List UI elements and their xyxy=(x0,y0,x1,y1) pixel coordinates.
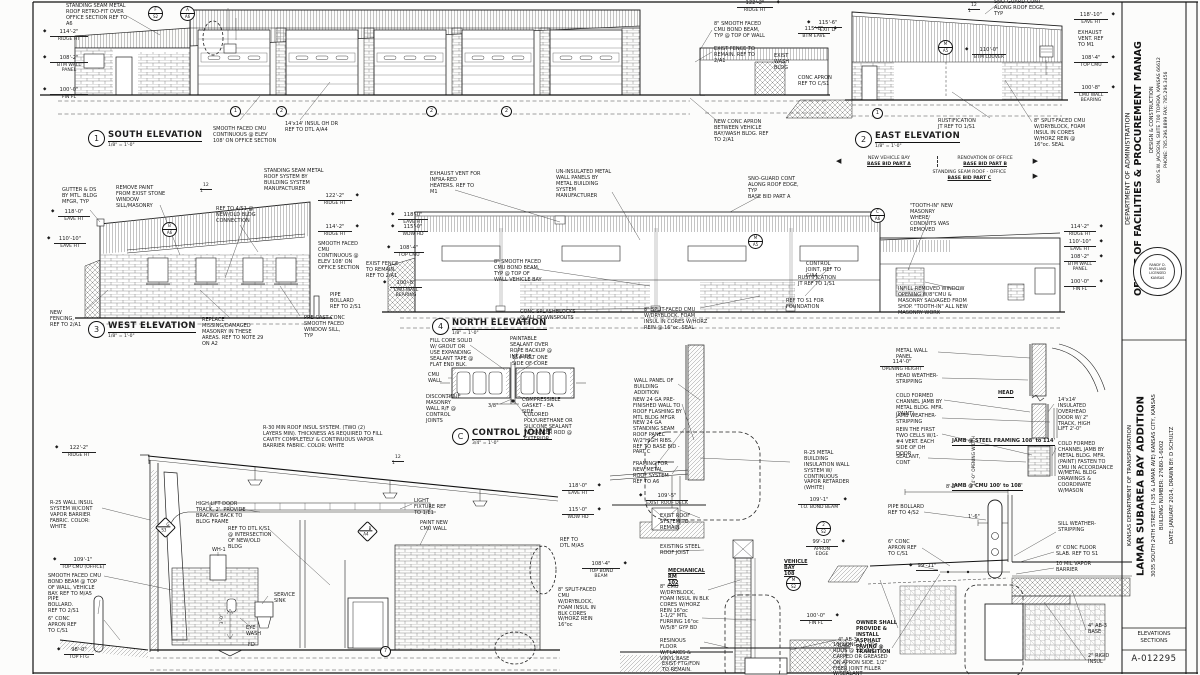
elev-mark: 108'-2"BTM WALL PANEL xyxy=(50,56,88,74)
elev-mark: 114'-0"OPENING HEIGHT xyxy=(880,360,924,372)
elev-mark: 115'-0"WDW HD xyxy=(562,508,594,520)
grid-bubble: 2 xyxy=(276,106,287,117)
west-elevation-drawing xyxy=(75,202,332,324)
annotation: LIGHT FIXTURE REF TO 1/E1 xyxy=(414,499,448,517)
building-number: BUILDING NUMBER: 27680-1-6002 xyxy=(1158,348,1166,623)
elev-mark: 122'-2"RIDGE HT xyxy=(62,446,96,458)
dim-3-0: 3'-0" xyxy=(220,614,225,624)
annotation: NEW CONC APRON BETWEEN VEHICLE BAY/WASH … xyxy=(714,120,772,144)
annotation: PAINT NEW CMU WALL xyxy=(420,521,450,533)
annotation: 6" CONC APRON REF TO C/S1 xyxy=(888,540,924,558)
elev-mark: 99'-11" xyxy=(916,564,938,571)
elev-mark: 100'-8"CMU WALL BEARING xyxy=(390,281,422,299)
building-section-drawing xyxy=(60,455,560,670)
detail-ref-bubble: FS2 xyxy=(148,6,163,21)
annotation: STANDING SEAM METAL ROOF SYSTEM BY BUILD… xyxy=(264,169,326,193)
annotation: SMOOTH FACED CMU CONTINUOUS @ ELEV 108' … xyxy=(318,242,364,271)
annotation: REF TO 4/S1 @ NEW/OLD BLDG CONNECTION xyxy=(216,207,260,225)
annotation: UN-INSULATED METAL WALL PANELS BY METAL … xyxy=(556,170,614,199)
elev-mark: 115'-6"EXIT LT xyxy=(814,21,842,33)
view-title-west: 3 WEST ELEVATION1/8" = 1'-0" xyxy=(88,321,196,339)
annotation: 4" AB-3 BASE xyxy=(1088,624,1116,636)
roof-slope-symbol: 121 xyxy=(392,456,404,466)
annotation: EYE WASH xyxy=(246,626,268,638)
detail-label: HEAD xyxy=(998,390,1014,398)
annotation: R-25 METAL BUILDING INSULATION WALL SYST… xyxy=(804,451,854,492)
annotation: 15# FELT ONE SIDE OF CORE xyxy=(512,356,554,368)
annotation: 16" LONG X 1/2"ø RODS @ 12" O.C. CAPPED … xyxy=(833,643,893,675)
annotation: SNO-GUARD CONT ALONG ROOF EDGE, TYP xyxy=(994,0,1046,18)
elev-mark: 110'-10"EAVE HT xyxy=(54,237,86,249)
elev-mark: 114'-2"RIDGE HT xyxy=(50,30,88,42)
dim-1-6: 1'-6" xyxy=(968,515,984,521)
elev-mark: 118'-0"EAVE HT xyxy=(562,484,594,496)
elev-mark: 110'-0"BTM LOUVER xyxy=(972,48,1006,60)
annotation: EXIST FENCE TO REMAIN. REF TO 2/A1 xyxy=(366,262,400,280)
office-address: 800 S.W. JACKSON, SUITE 700 TOPEKA, KANS… xyxy=(1156,0,1163,240)
annotation: PIPE BOLLARD. REF TO 2/S1 xyxy=(48,597,84,615)
annotation: NEW 24 GA PRE-FINISHED WALL TO ROOF FLAS… xyxy=(633,398,683,422)
division-name: DESIGN & CONSTRUCTION xyxy=(1148,0,1156,240)
grid-bubble: 1 xyxy=(872,108,883,119)
elev-mark: 115'-0"WDW HD xyxy=(398,225,428,237)
annotation: PIPE BOLLARD REF TO 4/S2 xyxy=(888,505,924,517)
annotation: SMOOTH FACED CMU CONTINUOUS @ ELEV 108' … xyxy=(213,127,279,145)
annotation: REF TO S1 FOR FOUNDATION xyxy=(786,299,826,311)
annotation: EXIST ROOF SYSTEM TO REMAIN xyxy=(660,514,702,532)
elev-mark: 114'-2"RIDGE HT xyxy=(1064,225,1096,237)
annotation: SEALANT, CONT xyxy=(896,455,928,467)
annotation: PIPE BOLLARD REF TO 2/S1 xyxy=(330,293,362,311)
arrow-right-icon: ▶ xyxy=(1033,158,1038,165)
roof-slope-symbol: 121 xyxy=(968,4,980,14)
annotation: GUTTER & DS BY MTL. BLDG MFGR, TYP xyxy=(62,188,102,206)
elev-mark: 114'-2"RIDGE HT xyxy=(318,225,352,237)
elev-mark: 109'-1"TOP CMU (OFFICE) xyxy=(60,558,106,570)
annotation: FILL CORE SOLID W/ GROUT OR USE EXPANDIN… xyxy=(430,339,474,368)
annotation: 8" SPLIT-FACED CMU W/DRYBLOCK, FOAM INSU… xyxy=(558,588,604,629)
annotation: RUSTIFICATION JT REF TO 1/S1 xyxy=(938,119,980,131)
annotation: 3/8" xyxy=(488,404,502,410)
annotation: "TOOTH-IN" NEW MASONRY WHERE CONDUITS WA… xyxy=(910,204,954,233)
detail-ref-bubble: BA6 xyxy=(162,222,177,237)
annotation: WH-1 xyxy=(212,548,230,554)
elev-mark: 108'-4"TOP BOND BEAM xyxy=(582,562,620,580)
annotation: 1-1/2" MTL FURRING 16"oc W/5/8" GYP BD xyxy=(660,614,702,632)
elev-mark: 98'-0"TOP FTG xyxy=(64,648,94,660)
annotation: EXIST FTG/FDN TO REMAIN. xyxy=(662,662,708,674)
annotation: EXIST FENCE TO REMAIN. REF TO 2/A1 xyxy=(714,47,758,65)
detail-ref-bubble: AA6 xyxy=(180,6,195,21)
annotation: SILL WEATHER-STRIPPING xyxy=(1058,522,1100,534)
elev-mark: 122'-2"RIDGE HT xyxy=(737,1,773,13)
annotation: EXIST WASH BLDG xyxy=(774,54,800,72)
annotation: STANDING SEAM METAL ROOF RETRO-FIT OVER … xyxy=(66,4,128,28)
elev-mark: 108'-4"TOP CMU xyxy=(1074,56,1108,68)
elev-mark: 109'-5"EXIST ROOF DECK xyxy=(646,494,688,506)
elev-mark: 118'-10"EAVE HT xyxy=(1074,13,1108,25)
view-title-east: 2 EAST ELEVATION1/8" = 1'-0" xyxy=(855,131,960,149)
architect-seal: RANDY D. RIVELAND LICENSED KANSAS xyxy=(1133,247,1182,296)
roof-slope-symbol: 121 xyxy=(200,184,212,194)
drawing-sheet: STANDING SEAM METAL ROOF RETRO-FIT OVER … xyxy=(0,0,1200,675)
annotation: REF TO DTL K/S1 @ INTERSECTION OF NEW/OL… xyxy=(228,527,272,551)
agency-name: DEPARTMENT OF ADMINISTRATION xyxy=(1123,0,1132,338)
detail-ref-bubble: MA5 xyxy=(748,234,763,249)
elev-mark: 100'-0"FIN FL xyxy=(1064,280,1096,292)
elev-mark: 108'-2"BTM WALL PANEL xyxy=(1064,255,1096,273)
annotation: REF TO DTL M/A5 xyxy=(560,538,588,550)
annotation: 10 MIL VAPOR BARRIER xyxy=(1056,562,1094,574)
annotation: 8" SPLIT-FACED CMU W/DRYBLOCK, FOAM INSU… xyxy=(644,308,708,332)
elev-mark: 109'-1"T.O. BOND BEAM xyxy=(798,498,840,510)
grid-bubble: 1 xyxy=(230,106,241,117)
detail-ref-bubble: CA6 xyxy=(870,208,885,223)
view-title-control-joint: C CONTROL JOINT3/4" = 1'-0" xyxy=(452,428,552,446)
elev-mark: 100'-0"FIN FL xyxy=(800,614,832,626)
annotation: 8" SPLIT-FACED CMU W/DRYBLOCK, FOAM INSU… xyxy=(1034,119,1092,148)
annotation: 2" RIGID INSUL xyxy=(1088,654,1116,666)
elev-mark: 108'-4"TOP CMU xyxy=(394,246,424,258)
annotation: PRE-CAST CONC SMOOTH FACED WINDOW SILL, … xyxy=(304,316,348,340)
annotation: 6" CONC FLOOR SLAB. REF TO S1 xyxy=(1056,546,1102,558)
kdot-name: KANSAS DEPARTMENT OF TRANSPORTATION xyxy=(1126,348,1134,623)
grid-bubble: 7 xyxy=(380,646,391,657)
annotation: 8" SMOOTH FACED CMU BOND BEAM, TYP @ TOP… xyxy=(714,22,768,40)
dim-opening-width: 14'-0" OPENING WIDTH xyxy=(972,436,977,486)
annotation: SMOOTH FACED CMU BOND BEAM @ TOP OF WALL… xyxy=(48,574,102,598)
annotation: 14'x14' INSULATED OVERHEAD DOOR W/ 2" TR… xyxy=(1058,398,1100,433)
annotation: CONC APRON REF TO C/S1 xyxy=(798,76,832,88)
date-drawn-by: DATE: JANUARY 2014, DRAWN BY: D SCHULTZ xyxy=(1168,348,1176,623)
annotation: FRAMING FOR NEW METAL ROOF SYSTEM REF TO… xyxy=(633,462,677,486)
annotation: NEW FENCING, REF TO 2/A1 xyxy=(50,311,84,329)
annotation: CMU WALL xyxy=(428,373,452,385)
detail-label: JAMB @ STEEL FRAMING 108' to 114' xyxy=(952,438,1055,446)
arrow-right-icon: ▶ xyxy=(1033,173,1038,180)
view-title-north: 4 NORTH ELEVATION1/8" = 1'-0" xyxy=(432,318,547,336)
detail-ref-bubble: MA5 xyxy=(938,40,953,55)
annotation: 8" SMOOTH FACED CMU BOND BEAM, TYP @ TOP… xyxy=(494,260,542,284)
annotation: RESINOUS FLOOR W/FLAKES & VINYL BASE xyxy=(660,639,702,663)
grid-bubble: 2 xyxy=(501,106,512,117)
annotation: HEAD WEATHER-STRIPPING xyxy=(896,374,942,386)
annotation: HIGH LIFT DOOR TRACK, 2'. PROVIDE BRACIN… xyxy=(196,502,250,526)
elev-mark: 100'-0"FIN FL xyxy=(50,88,88,100)
project-title: LAMAR SUBAREA BAY ADDITION xyxy=(1134,348,1148,623)
detail-ref-bubble: MS2 xyxy=(786,576,801,591)
annotation: REMOVE PAINT FROM EXIST STONE WINDOW SIL… xyxy=(116,186,168,210)
elev-mark: 100'-8"CMU WALL BEARING xyxy=(1074,86,1108,104)
annotation: COLD FORMED CHANNEL JAMB BY METAL BLDG. … xyxy=(1058,442,1114,495)
annotation: SNO-GUARD CONT ALONG ROOF EDGE, TYP BASE… xyxy=(748,177,804,201)
annotation: EXHAUST VENT FOR INFRA-RED HEATERS. REF … xyxy=(430,172,482,196)
south-elevation-drawing xyxy=(40,8,830,120)
sheet-number: A-012295 xyxy=(1123,654,1185,664)
annotation: EXISTING STEEL ROOF JOIST xyxy=(660,545,702,557)
annotation: R-25 WALL INSUL SYSTEM W/CONT VAPOR BARR… xyxy=(50,501,94,530)
sheet-content-label: ELEVATIONS SECTIONS xyxy=(1123,631,1185,645)
elev-mark: 110'-10"EAVE HT xyxy=(1064,240,1096,252)
annotation: SERVICE SINK xyxy=(274,593,300,605)
base-bid-scope-arrows: ◀ NEW VEHICLE BAYBASE BID PART A RENOVAT… xyxy=(836,156,1038,182)
dim-8-0: 8'-0" xyxy=(946,485,966,491)
annotation: 6" CONC APRON REF TO C/S1 xyxy=(48,617,84,635)
project-location: 3035 SOUTH 24TH STREET (I-35 & LAMAR AVE… xyxy=(1150,348,1158,623)
annotation: R-30 MIN ROOF INSUL SYSTEM. (TWO (2) LAY… xyxy=(263,426,385,450)
annotation: RUSTIFICATION JT REF TO 1/S1 xyxy=(798,276,838,288)
annotation: REPLACE MISSING/DAMAGED MASONRY IN THESE… xyxy=(202,318,266,347)
annotation: FD xyxy=(248,643,260,649)
annotation: 8" CMU W/DRYBLOCK, FOAM INSUL IN BLK COR… xyxy=(660,585,710,614)
elev-mark: 118'-0"EAVE HT xyxy=(58,210,90,222)
annotation: EXHAUST VENT. REF TO M1 xyxy=(1078,31,1108,49)
annotation: INFILL REMOVED WINDOW OPENING W/8"CMU & … xyxy=(898,287,972,316)
annotation: JAMB WEATHER-STRIPPING xyxy=(896,414,942,426)
elev-mark: 99'-10"APRON EDGE xyxy=(806,540,838,558)
annotation: VEHICLE BAY 108 xyxy=(784,560,818,578)
office-phone: PHONE: 785.296.8899 FAX: 785.296.3456 xyxy=(1163,0,1170,240)
annotation: DISCONTINUE MASONRY WALL R/F @ CONTROL J… xyxy=(426,395,466,424)
elev-mark: 122'-2"RIDGE HT xyxy=(318,194,352,206)
annotation: WALL PANEL OF BUILDING ADDITION xyxy=(634,379,678,397)
view-title-south: 1 SOUTH ELEVATION1/8" = 1'-0" xyxy=(88,130,202,148)
grid-bubble: 2 xyxy=(426,106,437,117)
detail-ref-bubble: 2S2 xyxy=(816,521,831,536)
annotation: 14'x14' INSUL OH DR REF TO DTL A/A4 xyxy=(285,122,343,134)
annotation: NEW 24 GA STANDING SEAM ROOF PANEL W/2"H… xyxy=(633,421,683,456)
